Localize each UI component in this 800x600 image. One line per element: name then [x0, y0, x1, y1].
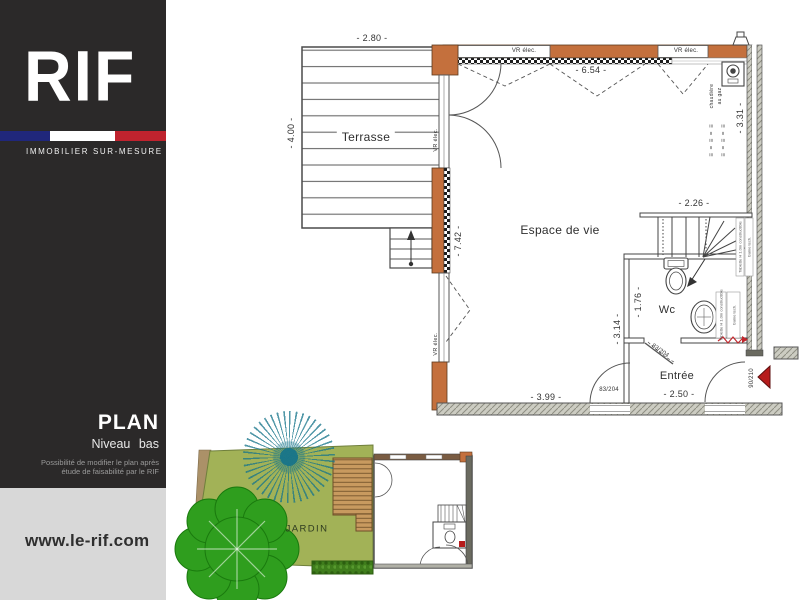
- dim-living-bottom: - 3.99 -: [531, 392, 562, 402]
- dim-living-height: - 7.42 -: [453, 226, 463, 257]
- electric-panel-symbol-2: ≡ = ≡ = ≡: [721, 123, 727, 156]
- page: RIF IMMOBILIER SUR-MESURE PLAN Niveau ba…: [0, 0, 800, 600]
- dim-wc-height: - 1.76 -: [633, 287, 643, 318]
- deck-steps: [356, 514, 372, 531]
- door-size-label-1: 83/204: [599, 387, 619, 393]
- entry-door-size-label: 90/210: [749, 368, 755, 388]
- note-duct-stairs: Gaine tech.: [747, 237, 752, 257]
- entry-direction-arrow: [758, 366, 770, 388]
- room-label-terrace: Terrasse: [337, 130, 395, 144]
- mini-floorplan: [374, 452, 472, 568]
- boiler-label-line2: au gaz: [717, 88, 723, 105]
- garden-hedge: [312, 561, 373, 574]
- dim-terrace-width: - 2.80 -: [357, 33, 388, 43]
- tree-symbol-starburst: [243, 411, 335, 503]
- boiler-unit: [722, 62, 744, 86]
- room-label-garden: JARDIN: [286, 524, 329, 535]
- note-shelf-stairs: Tablette H 1.0m constructible: [738, 221, 743, 273]
- shutter-label-left-2: VR élec.: [433, 332, 439, 355]
- note-duct-wc: Gaine tech.: [731, 305, 736, 325]
- dim-stair-width: - 2.26 -: [679, 198, 710, 208]
- shutter-label-left-1: VR élec.: [433, 128, 439, 151]
- note-shelf-wc: Tablette H 1.0m constructible: [719, 289, 724, 341]
- electric-panel-symbol-1: ≡ = ≡ = ≡: [709, 123, 715, 156]
- room-label-living: Espace de vie: [515, 223, 604, 237]
- boiler-label-line1: chaudière: [709, 84, 715, 109]
- floor-plan-drawing: [0, 0, 800, 600]
- dim-entry-width: - 2.50 -: [664, 389, 695, 399]
- dim-living-width: - 6.54 -: [576, 65, 607, 75]
- wc-fixtures: [664, 258, 748, 343]
- garden-deck: [333, 458, 372, 515]
- dim-hall-height: - 3.14 -: [612, 314, 622, 345]
- room-label-wc: Wc: [654, 304, 680, 316]
- dim-terrace-height: - 4.00 -: [286, 118, 296, 149]
- shutter-label-top-2: VR élec.: [674, 48, 698, 54]
- shutter-label-top-1: VR élec.: [512, 48, 536, 54]
- terrace-deck: [302, 47, 443, 268]
- room-label-entry: Entrée: [655, 370, 699, 382]
- dim-right-wall: - 3.31 -: [735, 103, 745, 134]
- window-swing-lines: [446, 64, 708, 342]
